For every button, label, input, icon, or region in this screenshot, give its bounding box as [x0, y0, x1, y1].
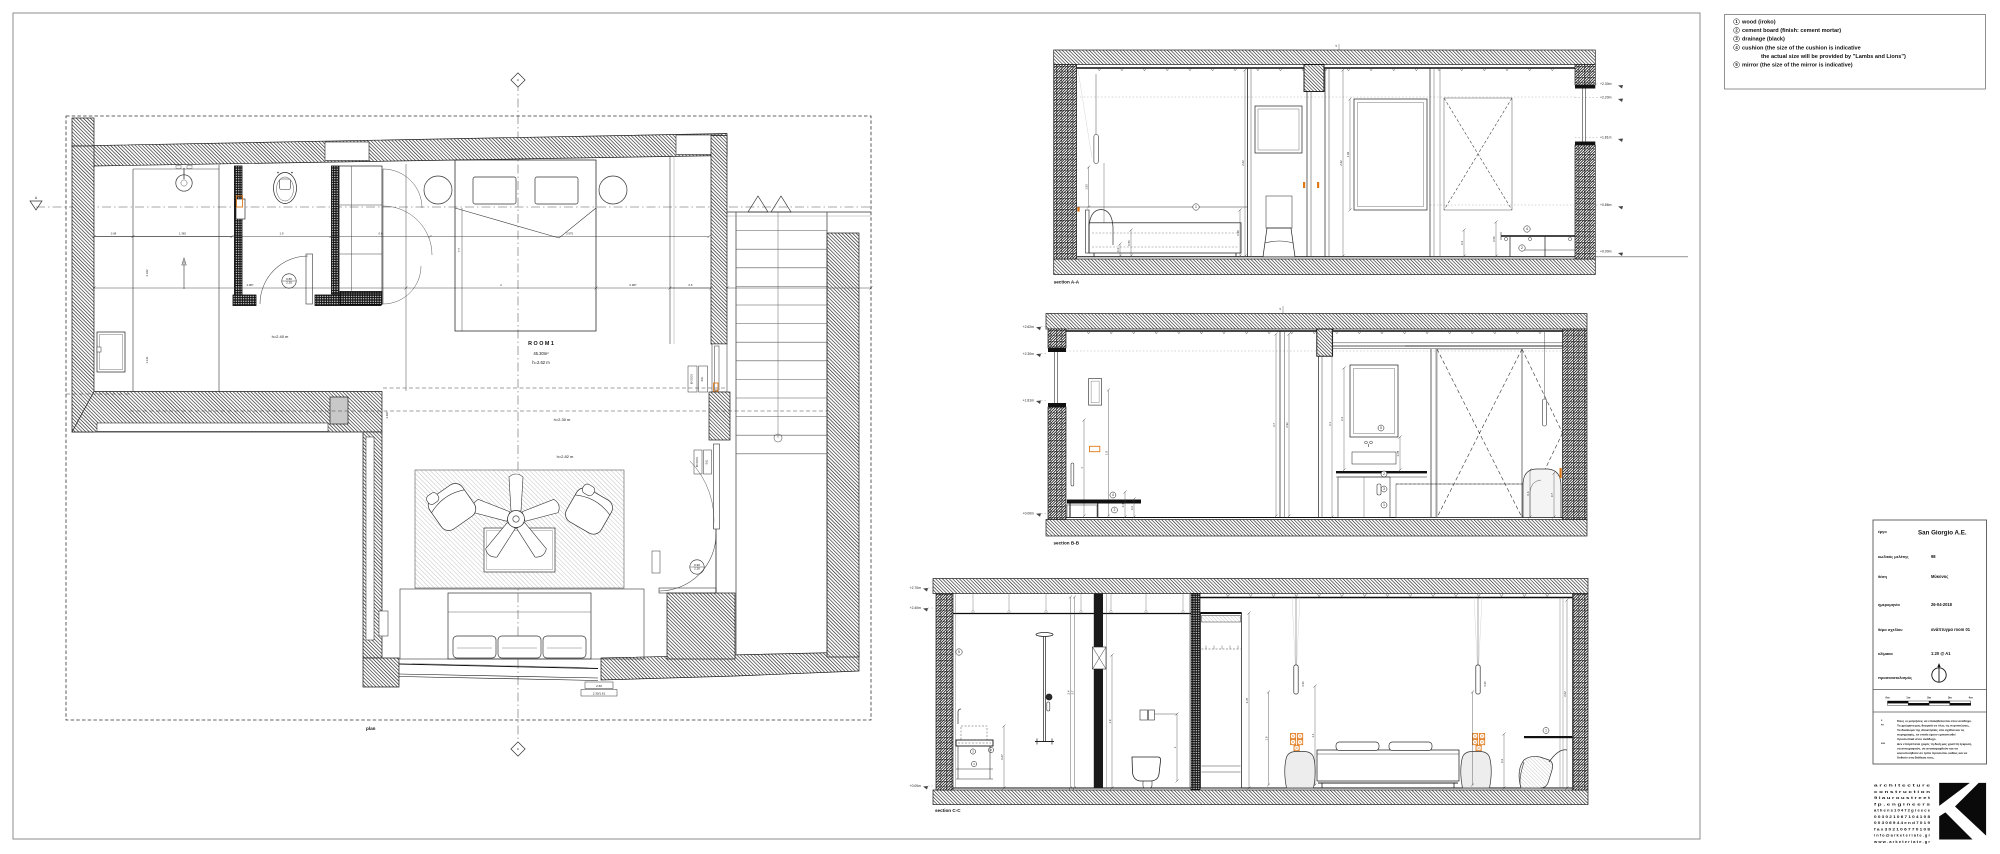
svg-text:3.342: 3.342 — [145, 269, 149, 276]
svg-text:7.7: 7.7 — [457, 248, 461, 252]
svg-text:R O O M 1: R O O M 1 — [528, 341, 554, 347]
svg-text:Τα δικαίωμα της ιδιοκτησίας στ: Τα δικαίωμα της ιδιοκτησίας στα σχέδια κ… — [1897, 728, 1965, 732]
svg-text:+2.30m: +2.30m — [1600, 82, 1612, 86]
svg-text:2.37: 2.37 — [1245, 697, 1249, 703]
svg-text:+0.00m: +0.00m — [1023, 512, 1035, 516]
svg-text:3.7: 3.7 — [1272, 423, 1276, 427]
svg-text:2.62: 2.62 — [1241, 160, 1245, 166]
svg-text:0 0 3 0 2 1 0 6 7 1 0 4 1 0: 0 0 3 0 2 1 0 6 7 1 0 4 1 0 8 — [1874, 815, 1930, 819]
svg-text:έργο: έργο — [1878, 529, 1887, 534]
svg-text:1m: 1m — [1906, 696, 1911, 700]
svg-text:0.4: 0.4 — [1460, 241, 1464, 245]
svg-text:26-04-2018: 26-04-2018 — [1931, 602, 1953, 607]
svg-text:0.6: 0.6 — [379, 231, 383, 235]
svg-text:να αντιγραφούν, να αναπαραχθού: να αντιγραφούν, να αναπαραχθούν και να — [1897, 746, 1958, 750]
svg-text:3.975: 3.975 — [566, 231, 573, 235]
svg-text:section A-A: section A-A — [1054, 280, 1080, 285]
svg-text:3m: 3m — [1948, 696, 1953, 700]
svg-text:cement board (finish: cement m: cement board (finish: cement mortar) — [1742, 28, 1841, 34]
svg-text:4: 4 — [1112, 493, 1114, 497]
svg-text:section B-B: section B-B — [1054, 541, 1080, 546]
svg-text:9 l a u r o u s t r e e t: 9 l a u r o u s t r e e t — [1874, 796, 1932, 800]
svg-text:69 DOCK: 69 DOCK — [696, 456, 699, 467]
svg-text:h=2.62 m: h=2.62 m — [532, 360, 550, 365]
svg-text:h=2.40 m: h=2.40 m — [272, 334, 289, 339]
svg-text:0.6: 0.6 — [1526, 491, 1530, 495]
svg-text:2m: 2m — [1927, 696, 1932, 700]
svg-text:c o n s t r u c t i o n: c o n s t r u c t i o n — [1874, 790, 1930, 794]
svg-text:the actual size will be provid: the actual size will be provided by "Lam… — [1761, 54, 1906, 60]
svg-text:3.7: 3.7 — [1071, 690, 1075, 694]
svg-text:a r c h i t e c t u r e: a r c h i t e c t u r e — [1874, 784, 1930, 788]
svg-text:ημερομηνία: ημερομηνία — [1878, 602, 1900, 607]
svg-text:0.4: 0.4 — [1500, 759, 1504, 763]
svg-text:+1.81m: +1.81m — [1023, 399, 1035, 403]
svg-text:0.61: 0.61 — [701, 376, 704, 381]
svg-text:+0.86m: +0.86m — [1600, 203, 1612, 207]
svg-text:3.1: 3.1 — [1328, 422, 1332, 426]
svg-text:+2.30m: +2.30m — [1023, 352, 1035, 356]
svg-text:0.44: 0.44 — [1121, 501, 1125, 507]
svg-text:45.30m²: 45.30m² — [533, 351, 549, 356]
svg-text:drainage (black): drainage (black) — [1742, 37, 1785, 43]
svg-text:1: 1 — [1195, 205, 1197, 209]
svg-text:0.56: 0.56 — [1127, 240, 1131, 246]
svg-text:1: 1 — [1383, 503, 1385, 507]
svg-text:θέση: θέση — [1878, 574, 1888, 579]
svg-text:Όλες οι μετρήσεις να επαληθεύο: Όλες οι μετρήσεις να επαληθεύονται στον … — [1896, 719, 1972, 723]
svg-text:2.92: 2.92 — [1285, 422, 1289, 428]
svg-text:2.62: 2.62 — [1563, 691, 1567, 697]
svg-text:3.947: 3.947 — [385, 411, 389, 418]
svg-text:5: 5 — [1380, 426, 1382, 430]
svg-text:0.987: 0.987 — [630, 283, 637, 287]
svg-text:0.08: 0.08 — [111, 231, 117, 235]
svg-text:2: 2 — [1521, 246, 1523, 250]
svg-text:mirror (the size of the mirror: mirror (the size of the mirror is indica… — [1742, 63, 1853, 69]
svg-text:f p . e n g i n e e r s: f p . e n g i n e e r s — [1874, 802, 1930, 806]
svg-text:+2.40m: +2.40m — [910, 606, 922, 610]
svg-text:San Giorgio A.E.: San Giorgio A.E. — [1918, 530, 1967, 537]
svg-text:69 DOCK: 69 DOCK — [691, 373, 694, 384]
svg-text:section C-C: section C-C — [935, 808, 961, 813]
svg-text:0.98: 0.98 — [1236, 230, 1240, 236]
svg-text:0m: 0m — [1885, 696, 1890, 700]
svg-text:2: 2 — [1114, 508, 1116, 512]
svg-text:+1.81m: +1.81m — [1600, 136, 1612, 140]
svg-text:0.67: 0.67 — [1000, 754, 1004, 760]
svg-text:κλίμακα: κλίμακα — [1878, 651, 1893, 656]
svg-text:Μύκονος: Μύκονος — [1931, 574, 1948, 579]
svg-text:0.35: 0.35 — [1301, 681, 1305, 687]
svg-text:προσωπικά στον ανάδοχο.: προσωπικά στον ανάδοχο. — [1897, 737, 1936, 741]
svg-text:1.1: 1.1 — [1311, 733, 1315, 737]
svg-text:0.78: 0.78 — [1396, 450, 1400, 456]
svg-text:2.60: 2.60 — [596, 684, 602, 688]
svg-text:3: 3 — [1383, 487, 1385, 491]
svg-text:Δεν επιτρέπεται χωρίς τη δική: Δεν επιτρέπεται χωρίς τη δική μας γραπτή… — [1897, 742, 1972, 746]
svg-text:h=2.30 m: h=2.30 m — [554, 417, 571, 422]
svg-text:+0.00m: +0.00m — [1600, 250, 1612, 254]
svg-text:1.9: 1.9 — [1265, 736, 1269, 740]
svg-text:0.4: 0.4 — [1116, 248, 1120, 252]
svg-text:wood (iroko): wood (iroko) — [1741, 20, 1776, 26]
svg-text:θέμα σχεδίου: θέμα σχεδίου — [1878, 627, 1903, 632]
svg-text:0.2: 0.2 — [1130, 506, 1134, 510]
svg-text:plan: plan — [366, 726, 376, 731]
svg-text:5: 5 — [958, 650, 960, 654]
svg-text:2.4: 2.4 — [1340, 417, 1344, 421]
svg-text:+2.62m: +2.62m — [1023, 325, 1035, 329]
svg-text:1.9: 1.9 — [1108, 719, 1112, 723]
svg-text:κωδικός μελέτης: κωδικός μελέτης — [1878, 554, 1909, 559]
svg-text:2.42: 2.42 — [1339, 160, 1343, 166]
svg-text:98: 98 — [1931, 554, 1936, 559]
svg-text:4: 4 — [1526, 227, 1528, 231]
svg-text:0 0 3 0 6 9 4 4 e n d 7 0 1 9: 0 0 3 0 6 9 4 4 e n d 7 0 1 9 — [1874, 821, 1930, 825]
svg-text:4.987: 4.987 — [247, 283, 254, 287]
svg-text:2.20: 2.20 — [286, 281, 292, 285]
svg-text:κοινοποιηθούν σε τρίτα πρόσωπα: κοινοποιηθούν σε τρίτα πρόσωπα, καθώς κα… — [1897, 751, 1967, 755]
svg-text:1:20 @ A1: 1:20 @ A1 — [1931, 651, 1951, 656]
svg-text:0.7: 0.7 — [1550, 493, 1554, 497]
svg-text:***: *** — [1881, 742, 1886, 746]
svg-text:4m: 4m — [1969, 696, 1974, 700]
svg-text:a t h e n s 1 0 4 7 2 g r e: a t h e n s 1 0 4 7 2 g r e e c e — [1874, 809, 1930, 813]
svg-text:1: 1 — [1545, 729, 1547, 733]
svg-text:1.94: 1.94 — [1346, 151, 1350, 157]
svg-text:1.93: 1.93 — [1085, 184, 1089, 190]
svg-text:προσανατολισμός: προσανατολισμός — [1878, 675, 1912, 680]
svg-text:0.35: 0.35 — [1483, 681, 1487, 687]
svg-text:i n f o @ a r k e t e r i a t: i n f o @ a r k e t e r i a t e . g r — [1874, 834, 1931, 838]
svg-text:περιγραφές, τα οποία έχουν εμπ: περιγραφές, τα οποία έχουν εμπιστευθεί — [1897, 733, 1956, 737]
svg-text:0.6: 0.6 — [689, 283, 693, 287]
svg-text:Τα χρώματα μας θεσμικά σε όλες: Τα χρώματα μας θεσμικά σε όλες τις περιπ… — [1897, 724, 1970, 728]
svg-text:cushion (the size of the cushi: cushion (the size of the cushion is indi… — [1742, 45, 1861, 51]
svg-text:+2.70m: +2.70m — [910, 586, 922, 590]
svg-text:2: 2 — [1383, 472, 1385, 476]
svg-text:h=2.82 m: h=2.82 m — [557, 454, 574, 459]
svg-text:δοθούν στη διάθεση τους.: δοθούν στη διάθεση τους. — [1897, 755, 1935, 759]
svg-text:1.9: 1.9 — [280, 231, 284, 235]
svg-text:0.56: 0.56 — [1492, 236, 1496, 242]
svg-text:1.141: 1.141 — [145, 356, 149, 363]
svg-text:f a x 3 0 2 1 0 6 7 7 0 1 0: f a x 3 0 2 1 0 6 7 7 0 1 0 8 — [1874, 827, 1930, 831]
svg-text:2.30/1.61: 2.30/1.61 — [593, 692, 606, 696]
svg-text:ανάπτυγμα room 01: ανάπτυγμα room 01 — [1931, 627, 1971, 632]
svg-text:+0.00m: +0.00m — [910, 784, 922, 788]
svg-text:1.382: 1.382 — [179, 231, 186, 235]
svg-text:+2.20m: +2.20m — [1600, 96, 1612, 100]
svg-text:w w w . a r k e t e r i a t e: w w w . a r k e t e r i a t e . g r — [1873, 840, 1931, 844]
svg-text:0.61: 0.61 — [706, 459, 709, 464]
svg-text:1.9: 1.9 — [1104, 451, 1108, 455]
